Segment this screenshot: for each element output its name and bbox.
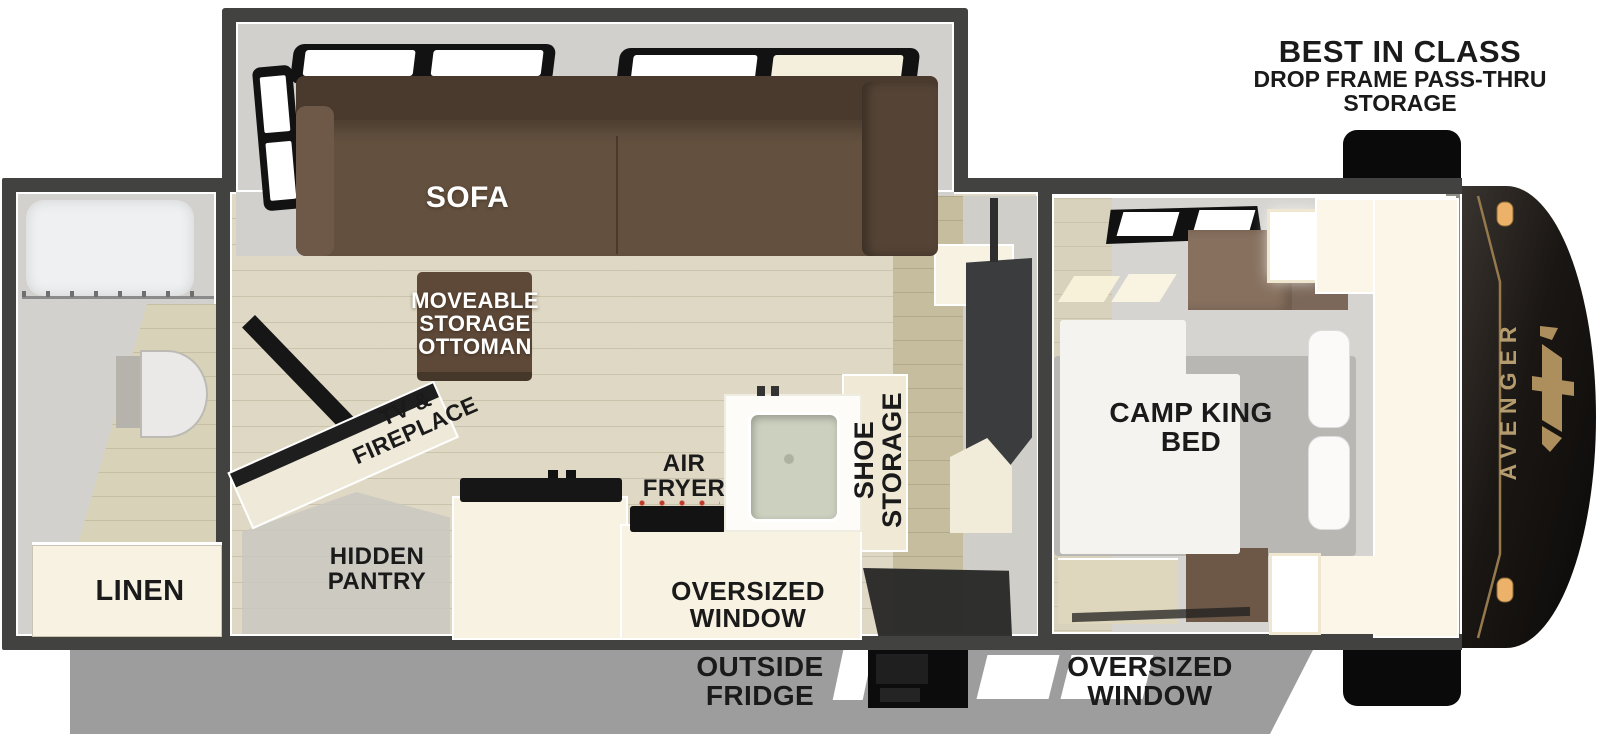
- linen-label: LINEN: [60, 576, 220, 606]
- pantry-line1: HIDDEN: [298, 545, 456, 570]
- heading-line1: BEST IN CLASS: [1215, 36, 1585, 67]
- ottoman-line1: MOVEABLE: [395, 290, 555, 313]
- ext-window-line2: WINDOW: [1050, 681, 1250, 710]
- cap-light-bottom: [1497, 578, 1513, 602]
- rv-floorplan: BEST IN CLASS DROP FRAME PASS-THRU STORA…: [0, 0, 1600, 736]
- bed-pillow-1: [1308, 330, 1350, 428]
- pass-thru-storage-tab-bottom: [1343, 646, 1461, 706]
- cooktop-knob-1: [548, 470, 558, 478]
- ottoman-line2: STORAGE: [395, 313, 555, 336]
- sofa: [296, 76, 938, 256]
- kitchen-counter: [452, 496, 628, 640]
- fridge-drawer-panel: [880, 688, 920, 702]
- cooktop: [460, 478, 622, 502]
- heading-line2: DROP FRAME PASS-THRU: [1215, 67, 1585, 91]
- ext-window-line1: OVERSIZED: [1050, 652, 1250, 681]
- headboard-cabinet-bottom: [1315, 556, 1385, 634]
- faucet: [757, 386, 765, 396]
- skylight-pane-left: [1117, 212, 1180, 236]
- kitchen-window-line2: WINDOW: [650, 605, 846, 632]
- shoe-line1: SHOE: [850, 380, 878, 540]
- brand-name-text: AVENGER: [1495, 319, 1521, 480]
- entry-step-1: [977, 655, 1060, 699]
- cap-trim-graphics: [1462, 186, 1596, 648]
- sink-cabinet: [724, 394, 862, 532]
- sofa-label: SOFA: [400, 182, 535, 213]
- toilet-tank: [116, 356, 142, 428]
- sofa-text: SOFA: [400, 182, 535, 213]
- bathroom-floor: [16, 192, 216, 636]
- sofa-armrest-left: [296, 106, 334, 256]
- pantry-line2: PANTRY: [298, 570, 456, 595]
- linen-text: LINEN: [60, 576, 220, 606]
- brand-name: AVENGER: [1495, 290, 1523, 510]
- outside-fridge-line2: FRIDGE: [660, 681, 860, 710]
- bedroom-window-bottom: [1272, 556, 1318, 632]
- shoe-storage-label: SHOE STORAGE: [850, 380, 906, 540]
- heading-line3: STORAGE: [1215, 91, 1585, 115]
- air-fryer-label: AIR FRYER: [630, 452, 738, 502]
- bedroom-divider-wall: [1036, 192, 1052, 650]
- side-window-pane-bottom: [265, 141, 296, 201]
- sink-basin: [748, 412, 840, 522]
- sink-drain: [784, 454, 794, 464]
- cooktop-knob-2: [566, 470, 576, 478]
- ottoman-line3: OTTOMAN: [395, 336, 555, 359]
- side-window-pane-top: [260, 75, 291, 133]
- best-in-class-heading: BEST IN CLASS DROP FRAME PASS-THRU STORA…: [1215, 36, 1585, 115]
- kitchen-window-label: OVERSIZED WINDOW: [650, 578, 846, 632]
- headboard-cabinet-column: [1373, 198, 1459, 638]
- bed-line2: BED: [1088, 427, 1294, 456]
- hidden-pantry-label: HIDDEN PANTRY: [298, 545, 456, 595]
- air-fryer-line1: AIR: [630, 452, 738, 477]
- fridge-door-panel: [876, 654, 928, 684]
- outside-fridge-box: [868, 648, 968, 708]
- faucet-handle: [771, 386, 779, 396]
- bed-line1: CAMP KING: [1088, 398, 1294, 427]
- air-fryer-unit: [630, 506, 726, 532]
- shoe-line2: STORAGE: [878, 380, 906, 540]
- wardrobe-pole: [990, 198, 998, 262]
- kitchen-window-line1: OVERSIZED: [650, 578, 846, 605]
- cap-light-top: [1497, 202, 1513, 226]
- sofa-chaise-end: [862, 82, 938, 256]
- window-1-pane-right: [431, 50, 544, 76]
- bed-pillow-2: [1308, 436, 1350, 530]
- shower-curtain-hooks: [22, 291, 214, 297]
- air-fryer-line2: FRYER: [630, 477, 738, 502]
- camp-king-bed-label: CAMP KING BED: [1088, 398, 1294, 456]
- bedroom-window-top: [1270, 212, 1318, 280]
- shower-pan: [26, 200, 194, 296]
- outside-fridge-label: OUTSIDE FRIDGE: [660, 652, 860, 710]
- window-1-pane-left: [303, 50, 416, 76]
- eagle-logo-icon: [1532, 326, 1574, 452]
- sofa-cushion-divider: [616, 136, 618, 254]
- outside-fridge-line1: OUTSIDE: [660, 652, 860, 681]
- front-cap: [1462, 186, 1596, 648]
- ottoman-label: MOVEABLE STORAGE OTTOMAN: [395, 290, 555, 359]
- exterior-oversized-window-label: OVERSIZED WINDOW: [1050, 652, 1250, 710]
- entry-door-mat: [860, 568, 1012, 636]
